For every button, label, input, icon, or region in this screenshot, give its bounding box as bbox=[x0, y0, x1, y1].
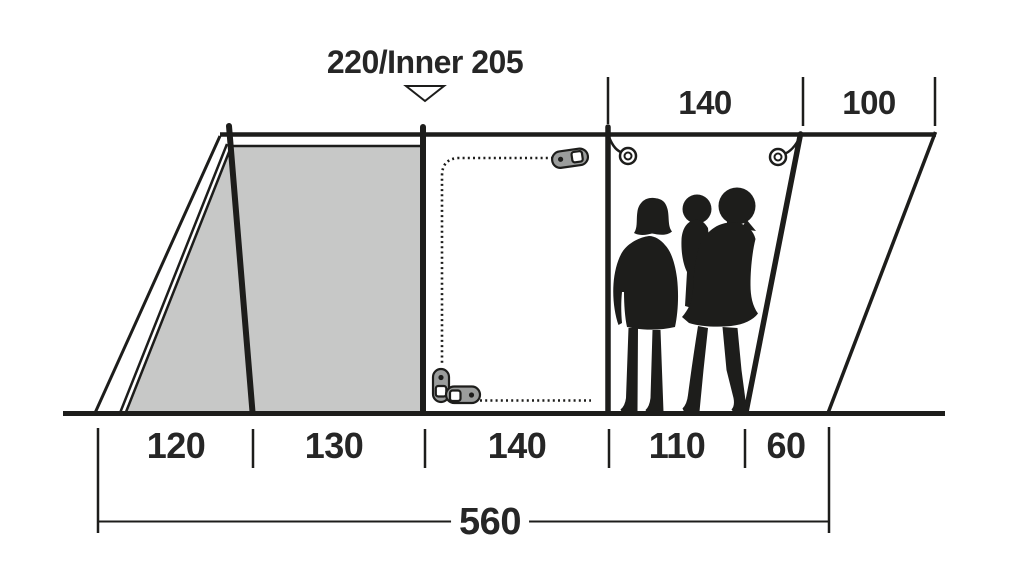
tent-dimension-diagram: 220/Inner 205 140 100 120 130 140 110 60… bbox=[0, 0, 1024, 577]
adult-with-child-silhouette bbox=[681, 188, 758, 412]
zipper-pull-hole bbox=[571, 151, 583, 163]
height-title: 220/Inner 205 bbox=[269, 46, 581, 78]
adult-front-leg bbox=[683, 326, 709, 412]
zipper-pull-hole bbox=[450, 391, 461, 402]
door-zipper-dotted-top-left bbox=[442, 158, 553, 364]
adult-woman-silhouette bbox=[613, 198, 678, 412]
tieback-ring-inner bbox=[775, 154, 782, 161]
door-zipper-outline bbox=[442, 158, 591, 401]
woman-back-leg bbox=[646, 330, 664, 412]
zipper-pull-bottom-horizontal-icon bbox=[446, 387, 480, 404]
zipper-pull-rivet bbox=[438, 375, 443, 380]
woman-head bbox=[634, 198, 672, 235]
woman-body bbox=[613, 236, 678, 330]
zipper-pull-top-icon bbox=[551, 148, 589, 169]
dimension-label-bottom-140: 140 bbox=[452, 428, 582, 464]
zipper-pull-hole bbox=[436, 386, 447, 397]
woman-front-leg bbox=[621, 328, 639, 412]
slanted-front-pole bbox=[746, 134, 801, 412]
adult-back-leg bbox=[723, 327, 748, 412]
height-indicator-arrow-icon bbox=[406, 86, 444, 101]
inner-tent-fill bbox=[126, 146, 423, 412]
right-outer-wall-line bbox=[828, 132, 936, 413]
dimension-label-top-140: 140 bbox=[640, 86, 770, 119]
zipper-pull-rivet bbox=[469, 392, 474, 397]
dimension-label-top-100: 100 bbox=[804, 86, 934, 119]
inner-tent-area bbox=[126, 146, 423, 412]
dimension-label-total-560: 560 bbox=[451, 503, 529, 541]
dimension-label-bottom-60: 60 bbox=[721, 428, 851, 464]
dimension-label-bottom-120: 120 bbox=[111, 428, 241, 464]
tieback-ring-left-icon bbox=[609, 137, 636, 164]
people-silhouette bbox=[613, 188, 758, 413]
dimension-label-bottom-130: 130 bbox=[269, 428, 399, 464]
tieback-ring-inner bbox=[625, 153, 632, 160]
